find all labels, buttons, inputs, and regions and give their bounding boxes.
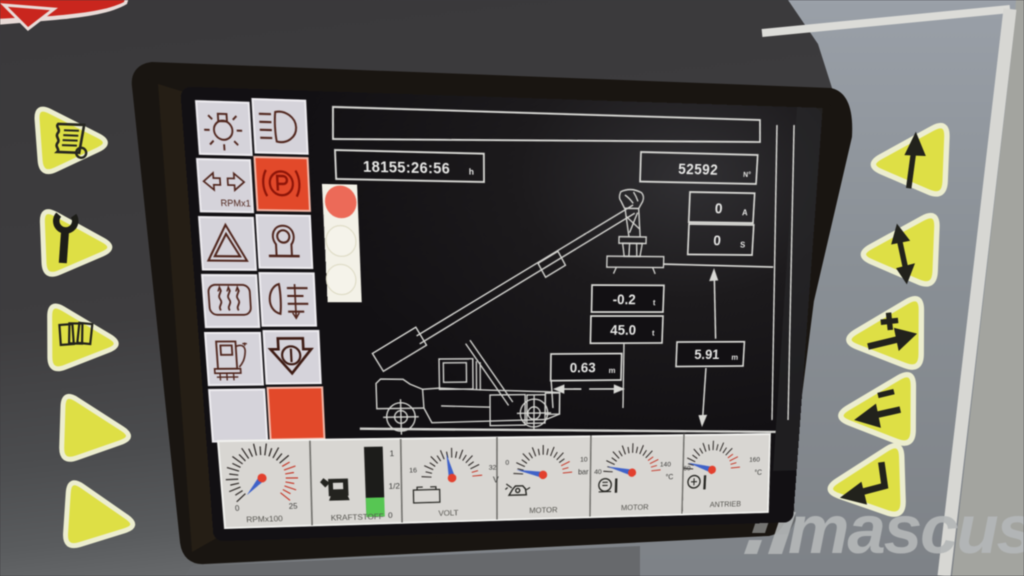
svg-text:mascus: mascus [788, 491, 1024, 568]
svg-text:1: 1 [389, 450, 394, 459]
svg-text:0.63: 0.63 [570, 360, 596, 376]
svg-text:16: 16 [409, 466, 417, 474]
svg-text:52592: 52592 [678, 161, 719, 179]
svg-text:10: 10 [580, 455, 588, 463]
svg-text:0: 0 [388, 511, 393, 520]
svg-text:RPMx100: RPMx100 [246, 515, 283, 525]
svg-text:ANTRIEB: ANTRIEB [709, 500, 741, 509]
svg-text:m: m [609, 366, 616, 375]
svg-text:160: 160 [749, 455, 760, 463]
svg-text:1/2: 1/2 [389, 482, 400, 491]
svg-text:25: 25 [289, 502, 298, 510]
svg-text:MOTOR: MOTOR [529, 506, 557, 515]
svg-text:0: 0 [505, 458, 509, 466]
svg-text:RPMx1: RPMx1 [220, 199, 251, 210]
svg-text:60: 60 [683, 464, 691, 472]
svg-text:45.0: 45.0 [610, 322, 636, 338]
svg-text:5.91: 5.91 [694, 347, 720, 363]
svg-text:°C: °C [754, 469, 762, 477]
svg-text:V: V [493, 475, 499, 485]
svg-text:140: 140 [660, 460, 671, 468]
svg-text:-0.2: -0.2 [612, 291, 636, 307]
svg-text:40: 40 [594, 468, 602, 476]
svg-text:VOLT: VOLT [438, 509, 458, 518]
svg-text:32: 32 [489, 463, 497, 471]
svg-text:S: S [740, 241, 746, 250]
svg-text:KRAFTSTOFF: KRAFTSTOFF [331, 513, 384, 523]
svg-text:0: 0 [714, 199, 723, 216]
svg-text:0: 0 [235, 504, 240, 512]
svg-text:A: A [742, 208, 748, 218]
svg-text:h: h [469, 167, 474, 177]
svg-text:m: m [731, 354, 738, 363]
svg-text:bar: bar [578, 468, 589, 476]
svg-text:N°: N° [743, 170, 752, 179]
svg-text:MOTOR: MOTOR [621, 503, 649, 512]
svg-text:0: 0 [713, 232, 721, 249]
svg-text:°C: °C [665, 473, 673, 481]
svg-text:18155:26:56: 18155:26:56 [363, 158, 451, 178]
